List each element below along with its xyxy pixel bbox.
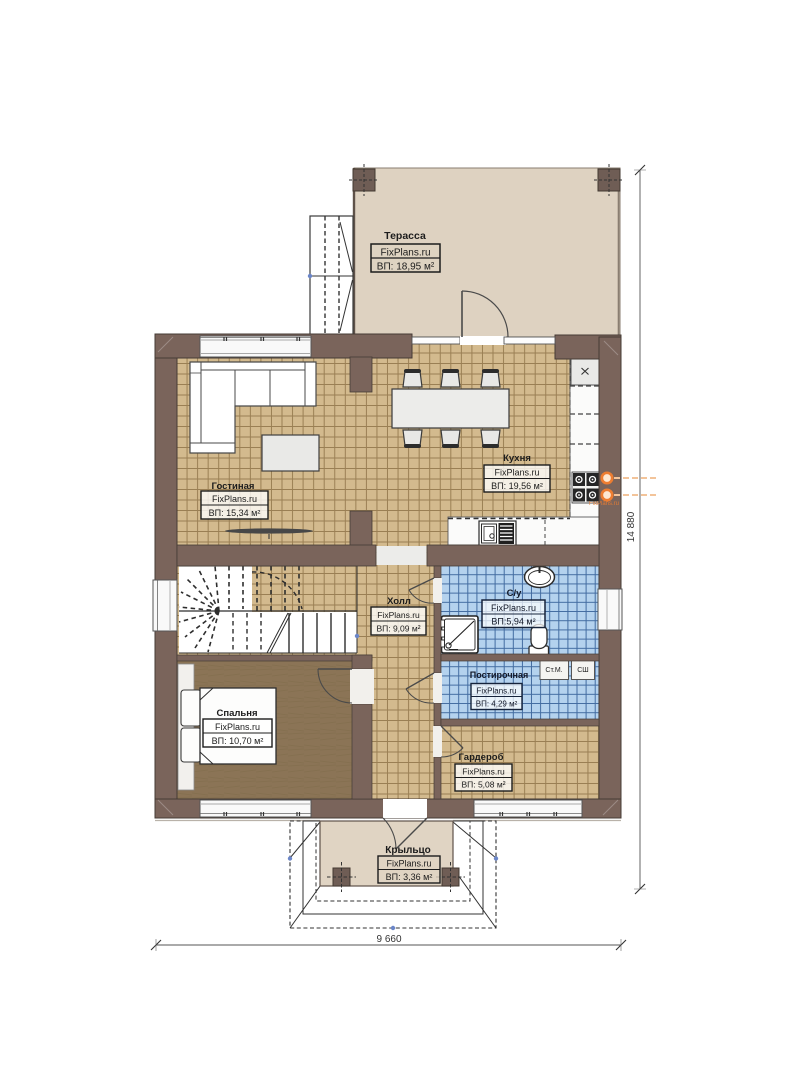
svg-text:Терасса: Терасса: [384, 230, 426, 242]
svg-text:ВП: 4,29 м²: ВП: 4,29 м²: [476, 700, 518, 709]
svg-text:ВП: 19,56 м²: ВП: 19,56 м²: [491, 481, 543, 491]
svg-text:Крыльцо: Крыльцо: [385, 845, 431, 856]
svg-text:ВП: 9,09 м²: ВП: 9,09 м²: [376, 624, 420, 634]
svg-text:FixPlans.ru: FixPlans.ru: [491, 603, 536, 613]
svg-text:14 880: 14 880: [626, 511, 637, 542]
svg-text:FixPlans.ru: FixPlans.ru: [494, 468, 539, 478]
svg-text:СШ: СШ: [577, 667, 588, 674]
svg-text:ВП:5,94 м²: ВП:5,94 м²: [491, 617, 535, 627]
svg-text:Спальня: Спальня: [216, 708, 257, 719]
svg-text:FixPlans.ru: FixPlans.ru: [589, 501, 619, 507]
svg-text:FixPlans.ru: FixPlans.ru: [380, 248, 430, 259]
svg-text:FixPlans.ru: FixPlans.ru: [212, 494, 257, 504]
svg-text:Холл: Холл: [387, 596, 411, 607]
svg-text:С/у: С/у: [507, 588, 523, 599]
svg-text:FixPlans.ru: FixPlans.ru: [476, 687, 516, 696]
svg-text:Постирочная: Постирочная: [470, 670, 528, 680]
svg-text:FixPlans.ru: FixPlans.ru: [386, 859, 431, 869]
svg-text:FixPlans.ru: FixPlans.ru: [377, 610, 420, 620]
svg-text:FixPlans.ru: FixPlans.ru: [462, 767, 505, 777]
svg-text:ВП: 18,95 м²: ВП: 18,95 м²: [377, 262, 435, 273]
svg-text:ВП: 15,34 м²: ВП: 15,34 м²: [209, 508, 261, 518]
svg-text:Ст.М.: Ст.М.: [545, 667, 562, 674]
svg-text:Гардероб: Гардероб: [459, 752, 504, 763]
svg-text:ВП: 3,36 м²: ВП: 3,36 м²: [386, 872, 433, 882]
svg-text:ВП: 10,70 м²: ВП: 10,70 м²: [212, 736, 264, 746]
svg-text:FixPlans.ru: FixPlans.ru: [215, 722, 260, 732]
svg-text:9 660: 9 660: [376, 934, 401, 945]
svg-text:ВП: 5,08 м²: ВП: 5,08 м²: [461, 780, 505, 790]
svg-text:Кухня: Кухня: [503, 453, 531, 464]
